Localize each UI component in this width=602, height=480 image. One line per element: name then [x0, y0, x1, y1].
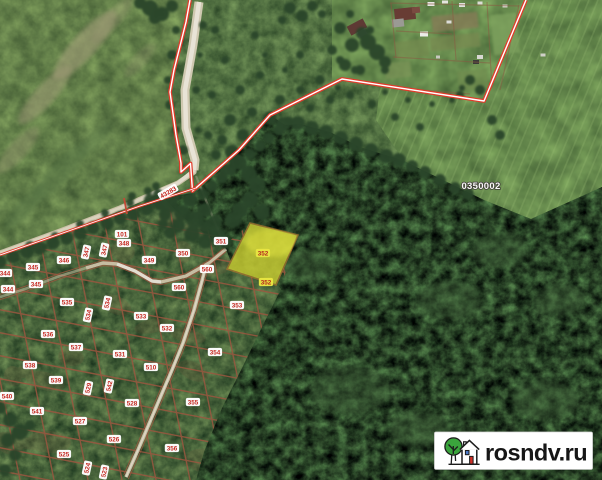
svg-text:348: 348: [119, 240, 130, 247]
svg-text:353: 353: [232, 302, 243, 309]
svg-text:0350002: 0350002: [461, 181, 500, 192]
svg-text:344: 344: [0, 270, 11, 277]
svg-text:356: 356: [167, 445, 178, 452]
svg-text:355: 355: [188, 399, 199, 406]
svg-text:510: 510: [146, 364, 157, 371]
svg-text:345: 345: [31, 281, 42, 288]
svg-text:532: 532: [162, 325, 173, 332]
svg-text:352: 352: [261, 279, 272, 286]
svg-text:344: 344: [3, 286, 14, 293]
svg-text:352: 352: [258, 250, 269, 257]
svg-text:527: 527: [75, 418, 86, 425]
svg-text:350: 350: [178, 250, 189, 257]
svg-text:345: 345: [28, 264, 39, 271]
svg-text:101: 101: [117, 231, 128, 238]
svg-text:541: 541: [32, 408, 43, 415]
svg-text:560: 560: [202, 266, 213, 273]
svg-text:rosndv.ru: rosndv.ru: [485, 440, 587, 466]
svg-text:539: 539: [51, 377, 62, 384]
svg-text:560: 560: [174, 284, 185, 291]
svg-text:535: 535: [62, 299, 73, 306]
svg-text:533: 533: [136, 313, 147, 320]
svg-text:354: 354: [210, 349, 221, 356]
svg-text:537: 537: [71, 344, 82, 351]
svg-text:351: 351: [216, 238, 227, 245]
svg-text:538: 538: [25, 362, 36, 369]
svg-text:525: 525: [59, 451, 70, 458]
svg-text:531: 531: [115, 351, 126, 358]
svg-text:528: 528: [127, 400, 138, 407]
svg-text:540: 540: [2, 393, 13, 400]
svg-text:346: 346: [59, 257, 70, 264]
svg-text:536: 536: [43, 331, 54, 338]
svg-text:526: 526: [109, 436, 120, 443]
svg-text:349: 349: [144, 257, 155, 264]
